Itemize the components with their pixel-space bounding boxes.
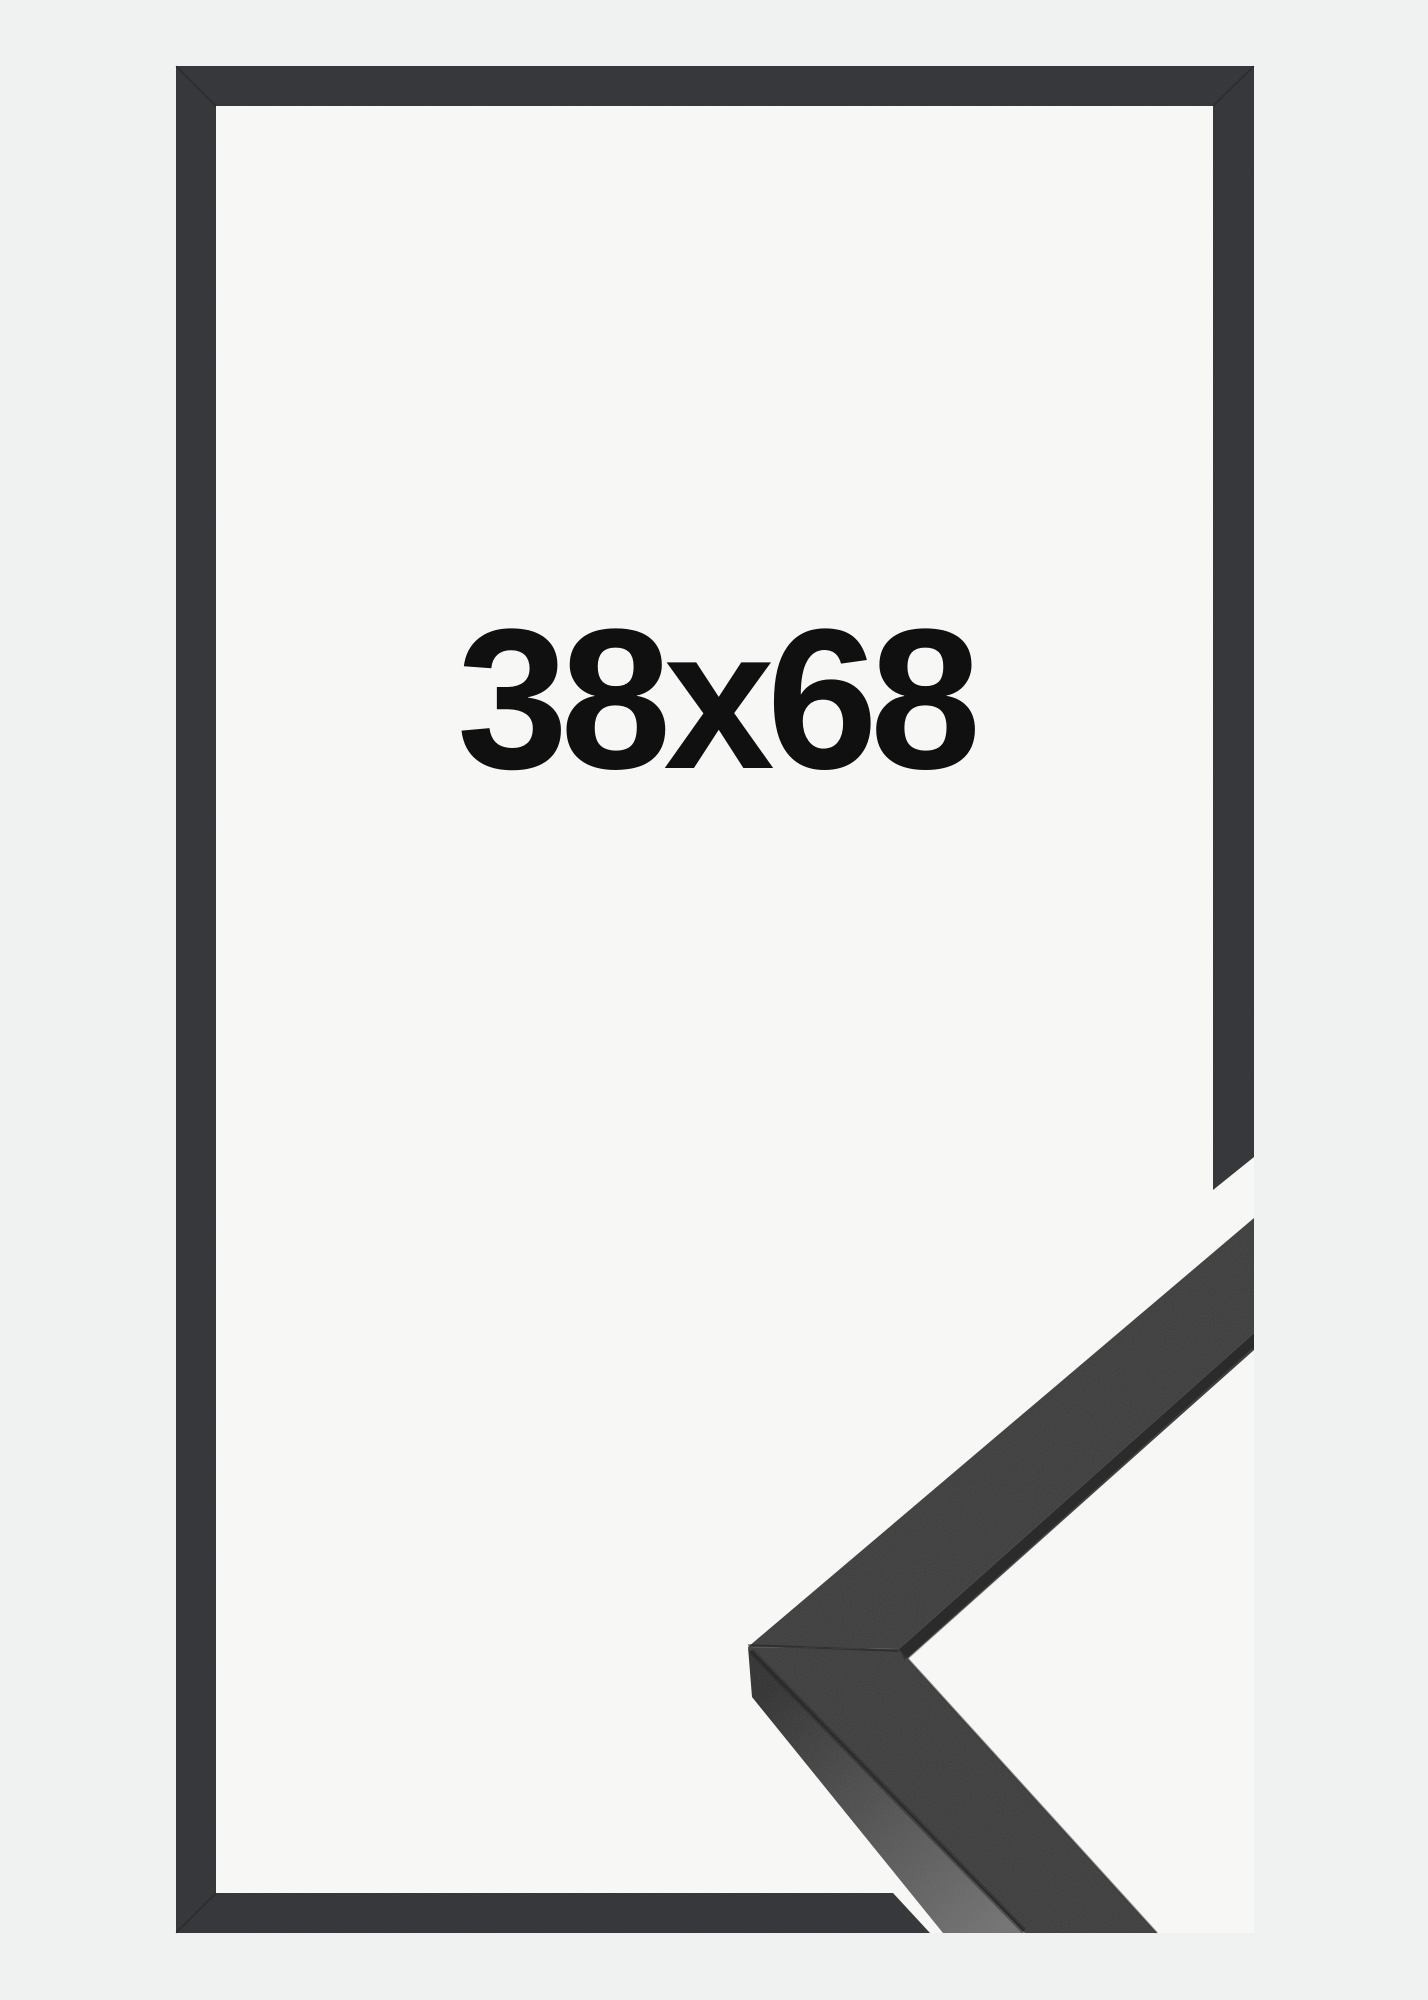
- frame-product-image: 38x68: [0, 0, 1428, 2000]
- frame-inner-plate: [176, 66, 1254, 1933]
- frame-illustration: [0, 0, 1428, 2000]
- size-label: 38x68: [176, 600, 1254, 800]
